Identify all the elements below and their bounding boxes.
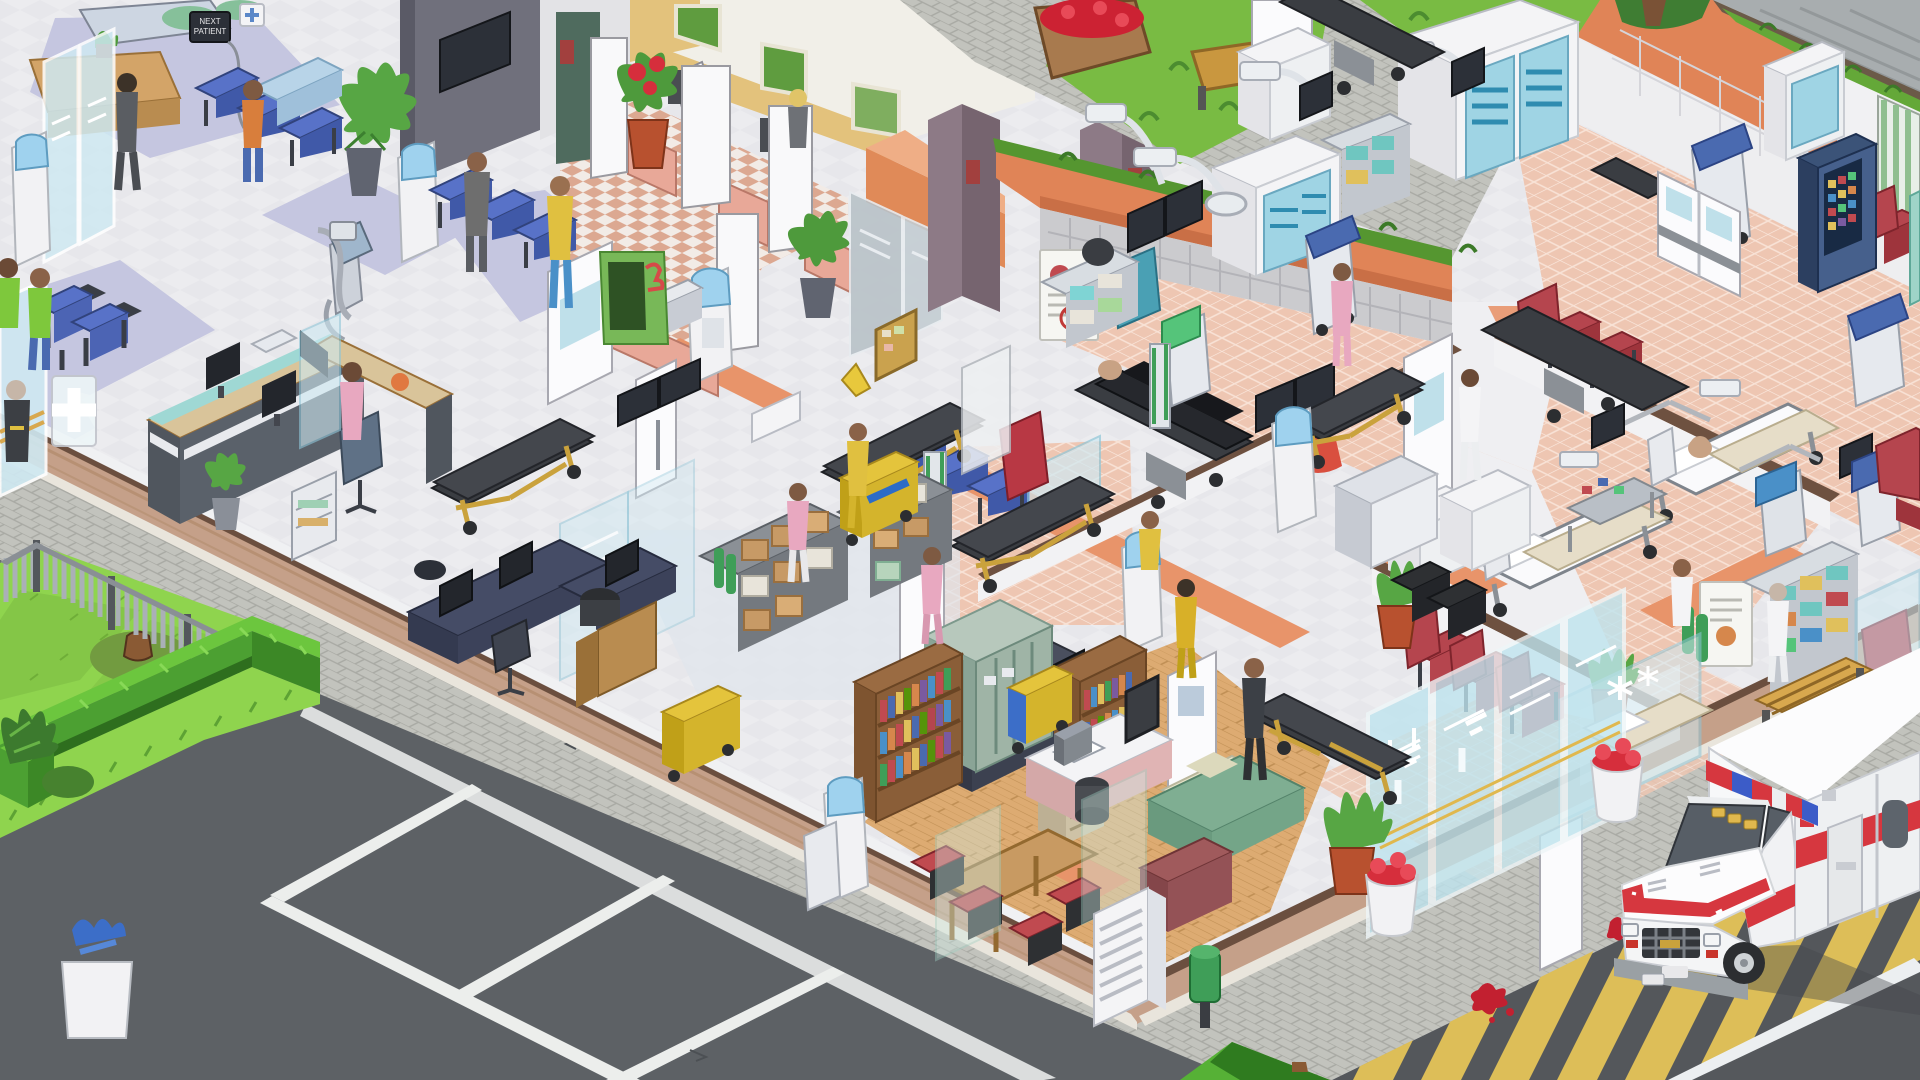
svg-text:PATIENT: PATIENT bbox=[194, 27, 227, 36]
svg-text:NEXT: NEXT bbox=[199, 17, 220, 26]
